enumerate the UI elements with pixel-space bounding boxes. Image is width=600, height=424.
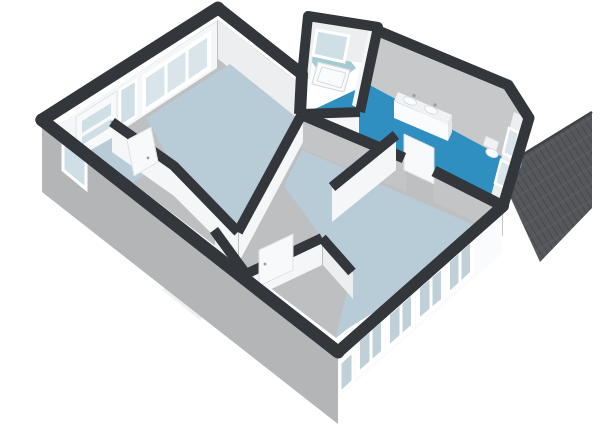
interior-door-handle bbox=[264, 263, 267, 266]
bedroom-door-handle bbox=[147, 157, 150, 160]
faucet-2 bbox=[433, 103, 436, 106]
faucet-1 bbox=[412, 94, 415, 97]
shower-window bbox=[313, 30, 349, 62]
floorplan-3d-render bbox=[0, 0, 600, 424]
floorplan-svg bbox=[0, 0, 600, 424]
